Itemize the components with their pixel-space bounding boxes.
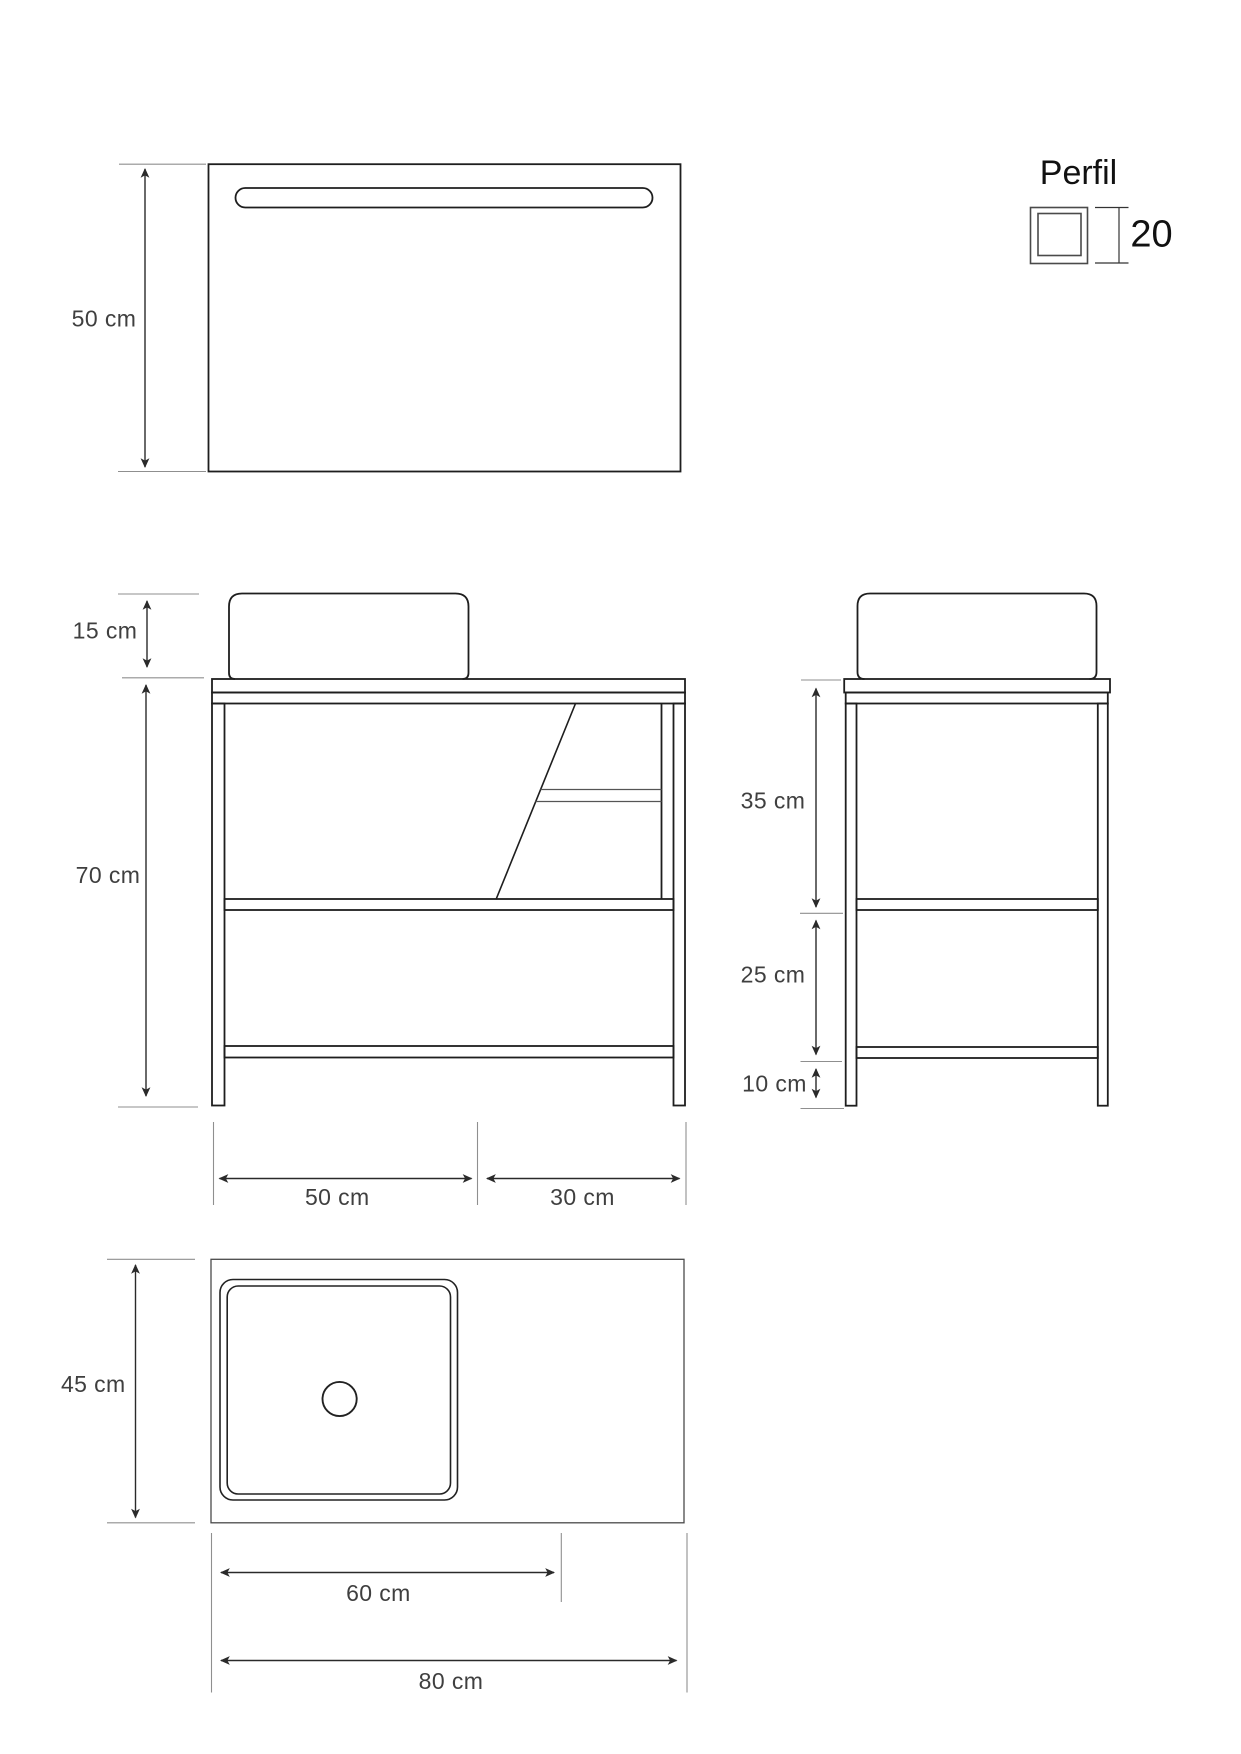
svg-text:20: 20 (1130, 214, 1172, 256)
svg-text:80 cm: 80 cm (419, 1668, 484, 1694)
svg-text:50 cm: 50 cm (305, 1184, 370, 1210)
svg-text:35 cm: 35 cm (741, 788, 806, 814)
svg-text:15 cm: 15 cm (73, 618, 138, 644)
svg-text:50 cm: 50 cm (72, 306, 137, 332)
svg-text:25 cm: 25 cm (741, 962, 806, 988)
svg-text:60 cm: 60 cm (346, 1580, 411, 1606)
svg-text:10 cm: 10 cm (742, 1071, 807, 1097)
svg-text:70 cm: 70 cm (76, 862, 141, 888)
svg-text:45 cm: 45 cm (61, 1371, 126, 1397)
svg-text:Perfil: Perfil (1040, 154, 1117, 192)
svg-text:30 cm: 30 cm (550, 1184, 615, 1210)
